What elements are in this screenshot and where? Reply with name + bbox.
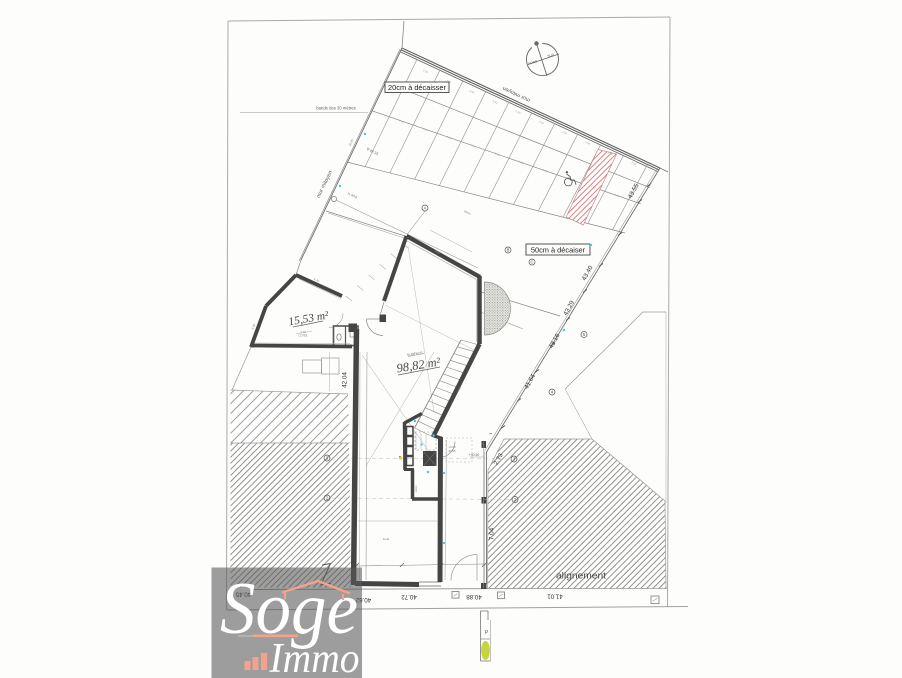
svg-text:+40.50: +40.50 — [469, 453, 480, 457]
svg-text:vélos: vélos — [414, 485, 418, 493]
svg-text:Immo: Immo — [269, 636, 360, 678]
svg-text:alignement: alignement — [556, 570, 606, 581]
svg-text:B: B — [507, 248, 510, 253]
svg-text:7.04: 7.04 — [489, 527, 496, 540]
svg-text:41.01: 41.01 — [547, 593, 563, 600]
svg-text:42.04: 42.04 — [342, 372, 349, 388]
svg-text:40.72: 40.72 — [401, 593, 417, 600]
svg-text:C: C — [530, 260, 533, 265]
svg-text:20cm à décaisser: 20cm à décaisser — [388, 83, 446, 92]
svg-text:1,10: 1,10 — [300, 330, 306, 334]
svg-text:50cm à décaiser: 50cm à décaiser — [531, 246, 586, 255]
svg-text:40.88: 40.88 — [466, 593, 482, 600]
svg-text:bande des 30 mètres: bande des 30 mètres — [316, 106, 355, 111]
svg-text:42.55: 42.55 — [449, 449, 456, 453]
svg-text:local: local — [383, 537, 390, 541]
svg-text:A: A — [424, 206, 427, 211]
